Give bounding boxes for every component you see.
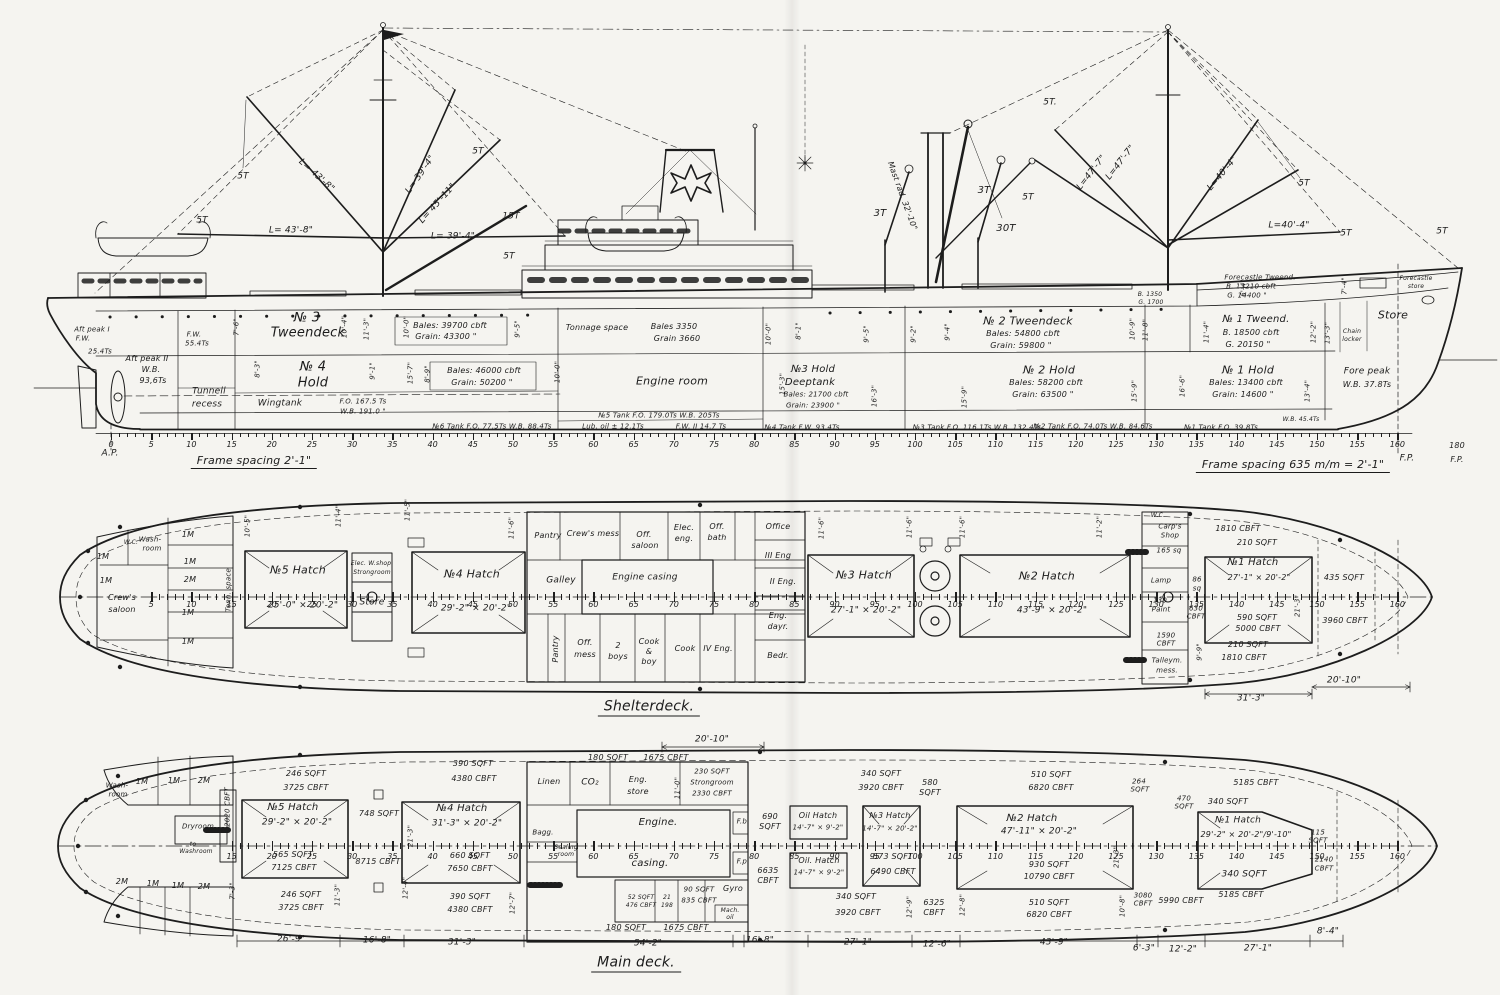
stays: [950, 30, 1458, 268]
hatches: [242, 800, 1312, 889]
topping-lifts: [178, 30, 565, 236]
hull-stern: [47, 298, 140, 429]
derrick-booms: [178, 90, 565, 252]
bales-box-no4: [430, 362, 536, 390]
ship-general-arrangement-drawing: 5T5TL= 43'-8"L= 43'-8"L= 39'-4"L= 45'-11…: [0, 0, 1500, 995]
no5-hatch: [242, 800, 348, 878]
dimension-lines: [1205, 682, 1410, 699]
lifeboat-aft: [96, 222, 211, 256]
fore-mast-rig: [950, 25, 1458, 291]
poop-deckhouse: [78, 273, 206, 298]
no2-hatch: [957, 806, 1133, 889]
no2-hatch: [960, 555, 1130, 637]
engine-casing: [582, 560, 713, 614]
tank-inner-line: [558, 419, 763, 421]
no3-hatch: [808, 555, 914, 637]
engine-casing: [577, 810, 730, 877]
winches: [408, 538, 960, 657]
heavy-derrick-15t: [386, 206, 526, 290]
no4-hatch: [412, 552, 525, 633]
bitts: [374, 790, 383, 892]
tank-top-line: [140, 409, 1332, 413]
kingpost-circles: [920, 546, 951, 636]
propeller: [111, 371, 125, 423]
hatch-corner-marks: [242, 800, 1220, 889]
bales-box-no3: [395, 317, 507, 345]
heavy-derrick-30t: [936, 127, 968, 282]
no5-hatch: [245, 551, 347, 628]
paper-crease: [784, 0, 800, 995]
derrick-booms: [1035, 120, 1340, 248]
hull-stem: [1338, 268, 1462, 429]
kingposts-and-cranes: [885, 120, 1035, 292]
rudder: [78, 366, 96, 428]
stays: [95, 30, 688, 293]
portholes-fwd: [830, 309, 1190, 313]
funnel-cross-emblem: [671, 165, 711, 201]
wing-dividers: [1318, 540, 1375, 656]
drawing-linework: [0, 0, 1500, 995]
funnel: [626, 150, 756, 214]
shaft-line: [124, 394, 560, 396]
tween-deck-line: [96, 351, 1335, 356]
trunk-2020: [220, 790, 236, 862]
crane-3t-aft-jib: [885, 172, 909, 245]
lifeboat-midship: [586, 217, 687, 251]
shelterdeck-view: [60, 501, 1432, 699]
no1-hatch: [1198, 812, 1312, 889]
forward-deckhouse: [1126, 512, 1188, 684]
maindeck-view: [58, 742, 1437, 947]
propeller-hub: [114, 393, 122, 401]
profile-view: [34, 23, 1497, 456]
midship-deckhouse: [527, 762, 748, 942]
aft-accommodation: [97, 516, 233, 668]
no1-hatch: [1205, 557, 1312, 643]
aft-mast-rig: [95, 23, 688, 297]
crane-3t-fwd-jib: [978, 163, 1001, 242]
aerial-wire: [383, 28, 1168, 32]
main-deck-line: [96, 288, 1448, 311]
